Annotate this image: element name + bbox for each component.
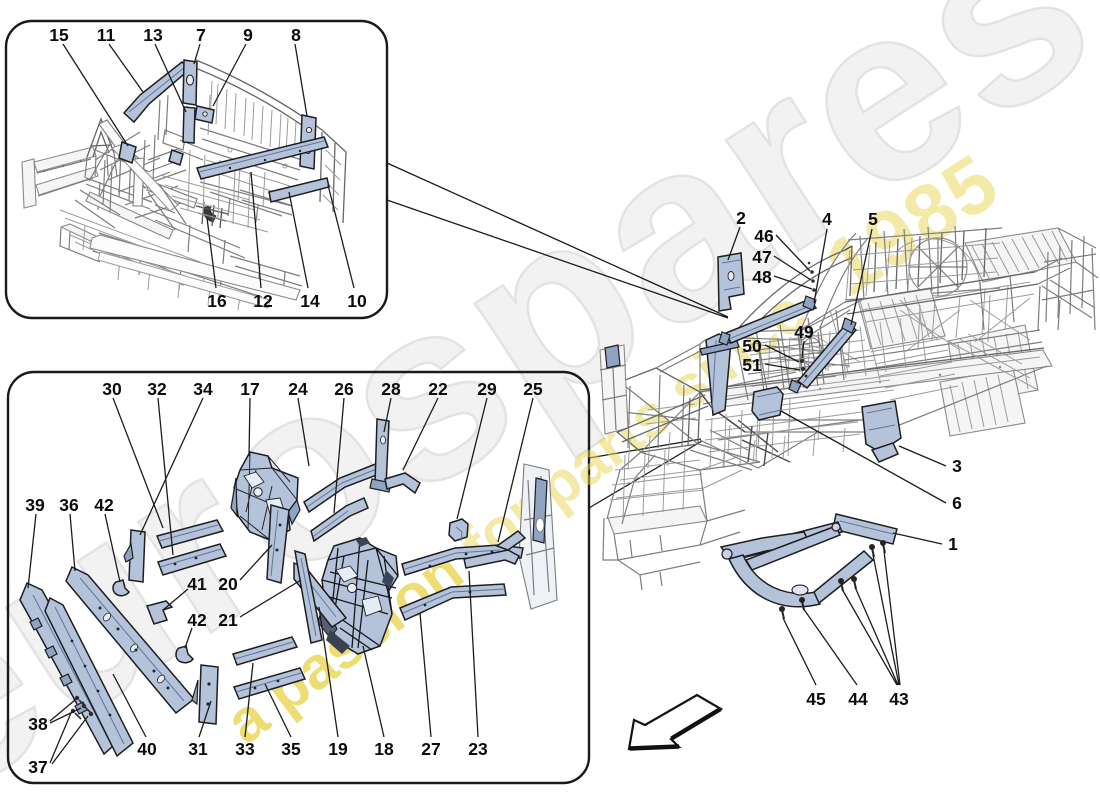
svg-text:3: 3 <box>952 456 962 476</box>
svg-text:21: 21 <box>218 610 238 630</box>
svg-text:7: 7 <box>196 25 206 45</box>
svg-text:42: 42 <box>187 610 207 630</box>
svg-text:15: 15 <box>49 25 69 45</box>
svg-text:37: 37 <box>28 757 47 777</box>
svg-text:35: 35 <box>281 739 301 759</box>
svg-text:46: 46 <box>754 226 774 246</box>
svg-text:2: 2 <box>736 208 746 228</box>
svg-text:39: 39 <box>25 495 45 515</box>
svg-text:19: 19 <box>328 739 348 759</box>
svg-text:41: 41 <box>187 574 207 594</box>
svg-text:16: 16 <box>207 291 227 311</box>
svg-text:44: 44 <box>848 689 868 709</box>
svg-text:20: 20 <box>218 574 238 594</box>
svg-text:40: 40 <box>137 739 157 759</box>
svg-text:31: 31 <box>188 739 208 759</box>
svg-text:24: 24 <box>288 379 308 399</box>
svg-text:10: 10 <box>347 291 367 311</box>
svg-text:42: 42 <box>94 495 114 515</box>
svg-text:14: 14 <box>300 291 320 311</box>
svg-text:48: 48 <box>752 267 772 287</box>
svg-text:17: 17 <box>240 379 259 399</box>
svg-text:8: 8 <box>291 25 301 45</box>
svg-text:23: 23 <box>468 739 488 759</box>
svg-text:43: 43 <box>889 689 909 709</box>
svg-text:13: 13 <box>143 25 163 45</box>
svg-text:33: 33 <box>235 739 255 759</box>
svg-text:22: 22 <box>428 379 448 399</box>
svg-text:50: 50 <box>742 336 762 356</box>
svg-text:26: 26 <box>334 379 354 399</box>
svg-text:45: 45 <box>806 689 826 709</box>
svg-text:47: 47 <box>752 247 771 267</box>
svg-text:38: 38 <box>28 714 48 734</box>
svg-text:36: 36 <box>59 495 79 515</box>
svg-text:32: 32 <box>147 379 167 399</box>
svg-text:1: 1 <box>948 534 958 554</box>
svg-text:49: 49 <box>794 322 814 342</box>
svg-text:5: 5 <box>868 209 878 229</box>
svg-text:11: 11 <box>97 25 116 45</box>
svg-text:30: 30 <box>102 379 122 399</box>
svg-text:12: 12 <box>253 291 273 311</box>
svg-text:28: 28 <box>381 379 401 399</box>
svg-text:51: 51 <box>742 355 762 375</box>
svg-text:29: 29 <box>477 379 497 399</box>
svg-text:4: 4 <box>822 209 832 229</box>
svg-text:25: 25 <box>523 379 543 399</box>
svg-text:34: 34 <box>193 379 213 399</box>
svg-text:6: 6 <box>952 493 962 513</box>
svg-text:27: 27 <box>421 739 440 759</box>
svg-text:18: 18 <box>374 739 394 759</box>
svg-text:9: 9 <box>243 25 253 45</box>
